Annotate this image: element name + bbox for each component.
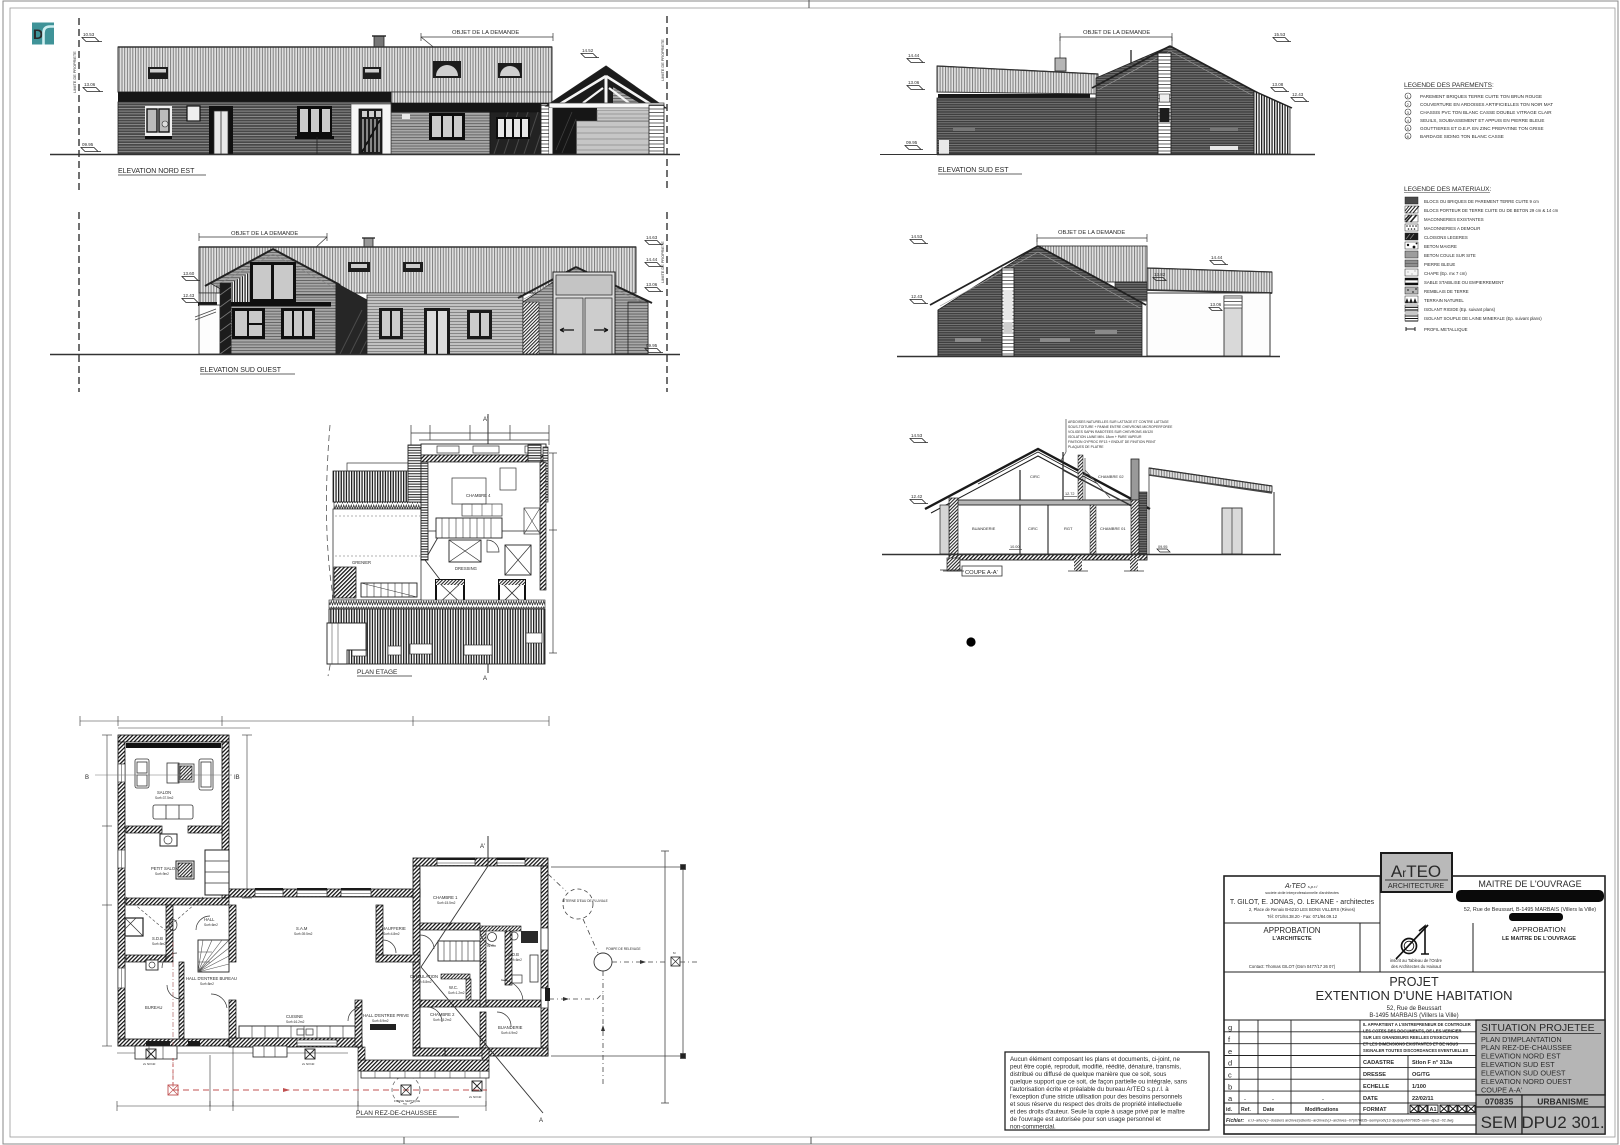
svg-text:2x NIV40: 2x NIV40 (302, 1062, 315, 1066)
svg-text:CHASSIS PVC TON BLANC CASSE DO: CHASSIS PVC TON BLANC CASSE DOUBLE VITRA… (1420, 110, 1552, 115)
svg-text:BUANDERIE: BUANDERIE (972, 526, 996, 531)
svg-text:14.44: 14.44 (646, 257, 658, 262)
svg-text:DATE: DATE (1363, 1096, 1378, 1102)
svg-text:S.A.M: S.A.M (296, 926, 308, 931)
svg-text:Tél: 071/84.38.20 - Fax: 071/8: Tél: 071/84.38.20 - Fax: 071/84.09.12 (1267, 914, 1338, 919)
svg-text:URBANISME: URBANISME (1537, 1097, 1589, 1107)
svg-text:COUPE A-A': COUPE A-A' (965, 570, 998, 576)
svg-text:Modifications: Modifications (1305, 1107, 1339, 1113)
svg-text:SABLE STABILISE OU EMPIERREMEN: SABLE STABILISE OU EMPIERREMENT (1424, 280, 1504, 285)
svg-text:et sous réserve du respect des: et sous réserve du respect des droits de… (1010, 1101, 1183, 1108)
svg-text:e:\J--arteo\(J--dossiers arch: e:\J--arteo\(J--dossiers archives)\clien… (1248, 1119, 1453, 1123)
svg-text:09.95: 09.95 (82, 142, 94, 147)
svg-text:ISOLATION LAINE MIN. 18cm + PA: ISOLATION LAINE MIN. 18cm + PARE VAPEUR (1068, 435, 1142, 439)
svg-text:CITERNE D'EAU DE PLUVIALE: CITERNE D'EAU DE PLUVIALE (562, 899, 608, 903)
svg-text:b: b (1228, 1083, 1232, 1092)
svg-text:A': A' (483, 417, 488, 423)
svg-text:e: e (1228, 1047, 1232, 1056)
svg-text:B-1495 MARBAIS (Villers la Vil: B-1495 MARBAIS (Villers la Ville) (1369, 1013, 1458, 1019)
svg-text:PROFIL METALLIQUE: PROFIL METALLIQUE (1424, 327, 1468, 332)
svg-text:IL APPARTIENT A L'ENTREPRENEUR: IL APPARTIENT A L'ENTREPRENEUR DE CONTRO… (1363, 1022, 1471, 1027)
svg-text:HALL D'ENTREE PRIVE: HALL D'ENTREE PRIVE (363, 1013, 409, 1018)
svg-text:g: g (1228, 1023, 1232, 1032)
svg-text:Surf=15.5m2: Surf=15.5m2 (437, 901, 456, 905)
svg-text:c: c (1228, 1071, 1232, 1080)
svg-text:S.D.B: S.D.B (508, 952, 519, 957)
svg-text:distribué ou diffusé de quelqu: distribué ou diffusé de quelque manière … (1010, 1071, 1166, 1078)
svg-text:CUISINE: CUISINE (286, 1014, 303, 1019)
svg-text:BLOCS PORTEUR DE TERRE CUITE O: BLOCS PORTEUR DE TERRE CUITE OU DE BETON… (1424, 208, 1559, 213)
svg-text:14.63: 14.63 (646, 235, 658, 240)
svg-text:SUR LES GRANDEURS REELLES D'EX: SUR LES GRANDEURS REELLES D'EXECUTION (1363, 1035, 1458, 1040)
svg-text:SEUILS, SOUBASSEMENT ET APPUI: SEUILS, SOUBASSEMENT ET APPUIS EN PIERRE… (1420, 118, 1544, 123)
svg-text:TERRAIN NATUREL: TERRAIN NATUREL (1424, 298, 1464, 303)
svg-text:CHAMBRE 2: CHAMBRE 2 (430, 1012, 455, 1017)
svg-text:10.00: 10.00 (1010, 545, 1020, 549)
svg-text:Ref.: Ref. (1241, 1107, 1251, 1113)
svg-text:A': A' (480, 844, 485, 850)
svg-text:OBJET DE LA DEMANDE: OBJET DE LA DEMANDE (452, 30, 519, 36)
svg-text:VOLIGES SAPIN RABOTEES SUR CHE: VOLIGES SAPIN RABOTEES SUR CHEVRONS 45/1… (1068, 430, 1153, 434)
svg-text:IB: IB (234, 775, 240, 781)
svg-text:APPROBATION: APPROBATION (1512, 925, 1566, 934)
svg-text:09.95: 09.95 (1158, 545, 1168, 549)
svg-text:REMBLAIS DE TERRE: REMBLAIS DE TERRE (1424, 289, 1469, 294)
svg-text:ELEVATION SUD OUEST: ELEVATION SUD OUEST (200, 367, 282, 374)
svg-text:PIERRE BLEUE: PIERRE BLEUE (1424, 262, 1455, 267)
svg-text:PLAQUES DE PLATRE: PLAQUES DE PLATRE (1068, 445, 1104, 449)
svg-text:Surf=16.2m2: Surf=16.2m2 (286, 1020, 305, 1024)
svg-text:APPROBATION: APPROBATION (1263, 926, 1320, 935)
svg-text:13.06: 13.06 (646, 282, 658, 287)
svg-text:12.42: 12.42 (911, 494, 923, 499)
svg-text:MACONNERIES EXISTANTES: MACONNERIES EXISTANTES (1424, 217, 1484, 222)
svg-text:Fichier:: Fichier: (1226, 1118, 1244, 1124)
svg-text:12.72: 12.72 (1065, 492, 1075, 496)
svg-text:PROJET: PROJET (1389, 975, 1439, 989)
svg-text:Surf=4.8m2: Surf=4.8m2 (383, 932, 400, 936)
svg-text:12.43: 12.43 (911, 294, 923, 299)
svg-text:ET LES DIMENSIONS EXISTANTES E: ET LES DIMENSIONS EXISTANTES ET DE NOUS (1363, 1042, 1458, 1047)
svg-text:l'exception d'une stricte util: l'exception d'une stricte utilisation po… (1010, 1094, 1182, 1101)
svg-text:COUPE A-A': COUPE A-A' (1481, 1086, 1523, 1095)
svg-text:ARDOISES NATURELLES SUR LATTAG: ARDOISES NATURELLES SUR LATTAGE ET CONTR… (1068, 420, 1170, 424)
svg-text:ELEVATION SUD EST: ELEVATION SUD EST (938, 167, 1009, 174)
svg-text:OBJET DE LA DEMANDE: OBJET DE LA DEMANDE (1083, 30, 1150, 36)
svg-text:15.53: 15.53 (1274, 32, 1286, 37)
svg-text:Surf=37.5m2: Surf=37.5m2 (155, 796, 174, 800)
svg-text:BUANDERIE: BUANDERIE (498, 1025, 523, 1030)
svg-text:LEGENDE DES MATERIAUX:: LEGENDE DES MATERIAUX: (1404, 186, 1491, 193)
svg-text:quelque support que ce soit, d: quelque support que ce soit, de façon pa… (1010, 1079, 1187, 1086)
svg-text:13.06: 13.06 (908, 80, 920, 85)
svg-text:DPU2 301.: DPU2 301. (1521, 1113, 1604, 1132)
svg-text:Surf=1.2m2: Surf=1.2m2 (448, 991, 465, 995)
svg-text:GOUTTIERES ET D.E.P. EN ZINC P: GOUTTIERES ET D.E.P. EN ZINC PREPATINE T… (1420, 126, 1544, 131)
svg-text:2x NIV40: 2x NIV40 (469, 1095, 482, 1099)
svg-text:ArTEO: ArTEO (1391, 862, 1441, 881)
svg-text:Date: Date (1263, 1107, 1274, 1113)
svg-text:Stlon F n° 313a: Stlon F n° 313a (1412, 1060, 1453, 1066)
svg-text:l'autorisation écrite et préal: l'autorisation écrite et préalable du bu… (1010, 1086, 1169, 1093)
svg-text:SIGNALER TOUTES DISCORDANCES E: SIGNALER TOUTES DISCORDANCES EVENTUELLES (1363, 1048, 1469, 1053)
svg-text:HALL: HALL (204, 917, 215, 922)
svg-text:FOSSE SEPTIQUE: FOSSE SEPTIQUE (394, 1099, 420, 1103)
svg-text:52, Rue de Beussart: 52, Rue de Beussart (1387, 1006, 1442, 1012)
svg-text:14.44: 14.44 (908, 53, 920, 58)
svg-text:2x NIV40: 2x NIV40 (143, 1062, 156, 1066)
svg-text:09.95: 09.95 (646, 343, 658, 348)
svg-text:LIMITE DE PROPRIETE: LIMITE DE PROPRIETE (661, 241, 665, 283)
svg-text:09.95: 09.95 (906, 140, 918, 145)
svg-text:Surf=9m2: Surf=9m2 (155, 872, 169, 876)
svg-text:SITUATION PROJETEE: SITUATION PROJETEE (1481, 1022, 1595, 1034)
svg-text:B: B (85, 775, 89, 781)
svg-text:BARDAGE SIDING TON BLANC CASSE: BARDAGE SIDING TON BLANC CASSE (1420, 134, 1504, 139)
svg-text:PLAN ETAGE: PLAN ETAGE (357, 669, 398, 676)
svg-text:CIRC: CIRC (1028, 526, 1038, 531)
svg-text:13.82: 13.82 (1154, 272, 1166, 277)
svg-text:Surf=6m2: Surf=6m2 (204, 923, 218, 927)
svg-text:Surf=8m2: Surf=8m2 (200, 982, 214, 986)
svg-text:DRESSE: DRESSE (1363, 1072, 1386, 1078)
svg-text:HALL D'ENTREE BUREAU: HALL D'ENTREE BUREAU (186, 976, 237, 981)
svg-text:52, Rue de Beussart, B-1495 MA: 52, Rue de Beussart, B-1495 MARBAIS (Vil… (1464, 907, 1596, 913)
svg-text:SOUS-TOITURE + PANNE ENTRE CHE: SOUS-TOITURE + PANNE ENTRE CHEVRONS MICR… (1068, 425, 1173, 429)
svg-text:PLAN REZ-DE-CHAUSSEE: PLAN REZ-DE-CHAUSSEE (356, 1110, 438, 1117)
svg-text:Surf=5m2: Surf=5m2 (152, 942, 166, 946)
svg-text:Surf=39.5m2: Surf=39.5m2 (294, 932, 313, 936)
svg-text:id.: id. (1226, 1107, 1233, 1113)
svg-text:14.52: 14.52 (582, 48, 594, 53)
svg-text:12.43: 12.43 (183, 293, 195, 298)
svg-text:inscrit au Tableau de l'Ordre: inscrit au Tableau de l'Ordre (1390, 958, 1443, 963)
svg-text:PAREMENT BRIQUES TERRE CUITE T: PAREMENT BRIQUES TERRE CUITE TON BRUN RO… (1420, 94, 1542, 99)
svg-text:BETON MAIGRE: BETON MAIGRE (1424, 244, 1457, 249)
svg-text:OBJET DE LA DEMANDE: OBJET DE LA DEMANDE (231, 231, 298, 237)
svg-text:CHAMBRE 01: CHAMBRE 01 (1100, 526, 1126, 531)
svg-text:22/02/11: 22/02/11 (1412, 1096, 1433, 1102)
svg-text:et des droits d'auteur. Seule: et des droits d'auteur. Seule la copie à… (1010, 1109, 1185, 1116)
svg-text:-: - (1272, 1097, 1274, 1103)
svg-text:PETIT SALON: PETIT SALON (151, 866, 178, 871)
svg-text:Surf=6m2: Surf=6m2 (508, 958, 522, 962)
svg-text:de l'ouvrage est autorisée pou: de l'ouvrage est autorisée pour son usag… (1010, 1116, 1161, 1123)
svg-text:-: - (1322, 1097, 1324, 1103)
svg-text:Aucun élément composant les pl: Aucun élément composant les plans et doc… (1010, 1056, 1180, 1063)
svg-text:A1: A1 (1430, 1107, 1437, 1113)
svg-text:14.53: 14.53 (911, 234, 923, 239)
svg-text:CIRC: CIRC (1030, 474, 1040, 479)
svg-text:14.44: 14.44 (1211, 255, 1223, 260)
svg-text:OG/TG: OG/TG (1412, 1072, 1430, 1078)
svg-text:BETON COULE SUR SITE: BETON COULE SUR SITE (1424, 253, 1476, 258)
svg-text:Contact: Thomas GILOT (Gsm 047: Contact: Thomas GILOT (Gsm 0477/17 26 07… (1249, 964, 1336, 969)
svg-text:MACONNERIES A DEMOLIR: MACONNERIES A DEMOLIR (1424, 226, 1480, 231)
svg-text:ISOLANT RIGIDE (Ep. suivant pl: ISOLANT RIGIDE (Ep. suivant plans) (1424, 307, 1496, 312)
svg-text:FINITION GYPROC RF13 + ENDUIT: FINITION GYPROC RF13 + ENDUIT DE FINITIO… (1068, 440, 1156, 444)
svg-text:POMPE DE RELEVAGE: POMPE DE RELEVAGE (606, 947, 641, 951)
svg-text:A: A (483, 676, 487, 682)
svg-text:ELEVATION NORD EST: ELEVATION NORD EST (118, 168, 195, 175)
svg-text:12.43: 12.43 (1292, 92, 1304, 97)
svg-text:DRESSING: DRESSING (455, 566, 477, 571)
svg-text:CHAPE (Ep. mx 7 cm): CHAPE (Ep. mx 7 cm) (1424, 271, 1467, 276)
svg-text:CHAMBRE 1: CHAMBRE 1 (433, 895, 458, 900)
svg-text:EXTENTION D'UNE HABITATION: EXTENTION D'UNE HABITATION (1315, 988, 1512, 1003)
svg-text:LE MAITRE DE L'OUVRAGE: LE MAITRE DE L'OUVRAGE (1502, 936, 1576, 942)
svg-text:LES COTES DES DOCUMENTS, DE LE: LES COTES DES DOCUMENTS, DE LES VERIFIER (1363, 1029, 1461, 1034)
svg-text:ISOLANT SOUPLE DE LAINE MINERA: ISOLANT SOUPLE DE LAINE MINERALE (Ep. su… (1424, 316, 1542, 321)
svg-text:1/100: 1/100 (1412, 1084, 1426, 1090)
svg-text:CHAMBRE 4: CHAMBRE 4 (466, 493, 491, 498)
svg-text:Surf=5.9m2: Surf=5.9m2 (372, 1019, 389, 1023)
svg-text:MAITRE DE L'OUVRAGE: MAITRE DE L'OUVRAGE (1478, 879, 1581, 889)
svg-text:Surf=4.9m2: Surf=4.9m2 (501, 1031, 518, 1035)
svg-text:LIMITE DE PROPRIETE: LIMITE DE PROPRIETE (73, 51, 77, 93)
svg-text:2, Place de Renaix B-6210 LES: 2, Place de Renaix B-6210 LES BONS VILLE… (1249, 907, 1356, 912)
svg-text:L'ARCHITECTE: L'ARCHITECTE (1272, 936, 1312, 942)
svg-text:GRENIER: GRENIER (352, 560, 371, 565)
svg-text:070835: 070835 (1485, 1097, 1514, 1107)
svg-text:OBJET DE LA DEMANDE: OBJET DE LA DEMANDE (1058, 230, 1125, 236)
svg-text:ARCHITECTURE: ARCHITECTURE (1388, 881, 1445, 890)
svg-text:ArTEO s.p.r.l: ArTEO s.p.r.l (1284, 883, 1317, 890)
svg-text:13.06: 13.06 (1210, 302, 1222, 307)
svg-text:SALON: SALON (157, 790, 171, 795)
svg-text:CHAUFFERIE: CHAUFFERIE (379, 926, 406, 931)
svg-text:-: - (1244, 1097, 1246, 1103)
svg-text:non-commercial.: non-commercial. (1010, 1124, 1056, 1131)
svg-text:D: D (33, 26, 43, 42)
svg-text:CIRCULATION: CIRCULATION (410, 974, 438, 979)
svg-text:CADASTRE: CADASTRE (1363, 1060, 1394, 1066)
svg-text:BLOCS OU BRIQUES DE PAREMENT: BLOCS OU BRIQUES DE PAREMENT TERRE CUITE… (1424, 199, 1539, 204)
svg-text:13.06: 13.06 (84, 82, 96, 87)
svg-text:LIMITE DE PROPRIETE: LIMITE DE PROPRIETE (661, 39, 665, 81)
svg-text:peut être copié, reproduit, mo: peut être copié, reproduit, modifié, réé… (1010, 1064, 1181, 1071)
svg-text:13.60: 13.60 (183, 271, 195, 276)
svg-text:A: A (539, 1118, 543, 1124)
svg-text:societe civile interprofession: societe civile interprofessionnelle d'ar… (1265, 891, 1339, 895)
svg-text:S.D.B: S.D.B (152, 936, 163, 941)
svg-text:T. GILOT, E. JONAS, O. LEKANE: T. GILOT, E. JONAS, O. LEKANE - architec… (1230, 899, 1375, 906)
svg-text:FORMAT: FORMAT (1363, 1107, 1387, 1113)
svg-text:Surf=5.8m2: Surf=5.8m2 (415, 980, 432, 984)
svg-text:BUREAU: BUREAU (145, 1005, 162, 1010)
svg-text:COUVERTURE EN ARDOISES ARTIFIC: COUVERTURE EN ARDOISES ARTIFICIELLES TON… (1420, 102, 1553, 107)
svg-text:W.C.: W.C. (449, 985, 458, 990)
svg-text:RGT: RGT (1064, 526, 1073, 531)
svg-text:d: d (1228, 1059, 1232, 1068)
svg-text:SEM: SEM (1481, 1113, 1518, 1132)
svg-text:CLOISONS LEGERES: CLOISONS LEGERES (1424, 235, 1468, 240)
svg-text:CHAMBRE 02: CHAMBRE 02 (1098, 474, 1124, 479)
svg-text:10.53: 10.53 (83, 32, 95, 37)
svg-text:14.53: 14.53 (911, 433, 923, 438)
svg-text:des Architectes du Hainaut: des Architectes du Hainaut (1391, 964, 1442, 969)
svg-text:13.08: 13.08 (1272, 82, 1284, 87)
svg-text:ECHELLE: ECHELLE (1363, 1084, 1389, 1090)
svg-text:LEGENDE DES PAREMENTS:: LEGENDE DES PAREMENTS: (1404, 82, 1494, 89)
